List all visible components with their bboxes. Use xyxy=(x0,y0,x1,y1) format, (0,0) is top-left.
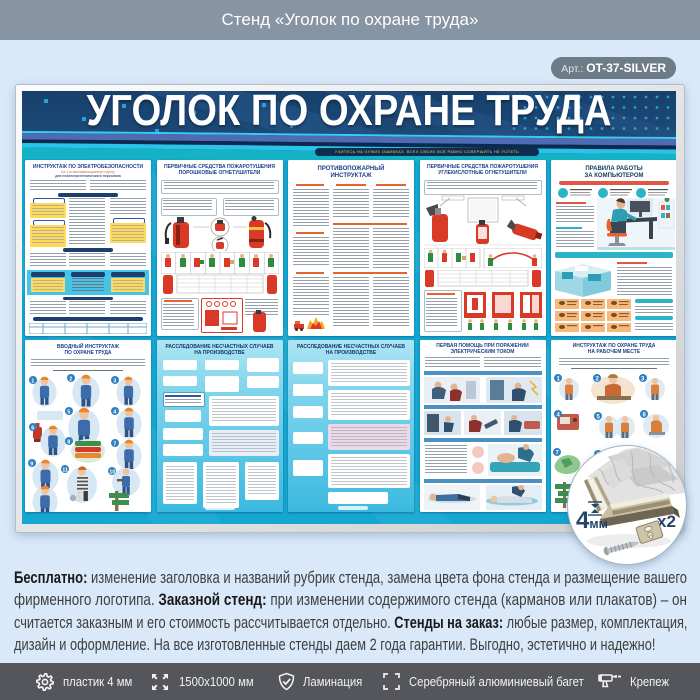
svg-text:10: 10 xyxy=(109,470,115,476)
svg-text:8: 8 xyxy=(67,440,70,446)
svg-text:6: 6 xyxy=(31,426,34,432)
svg-text:4мм: 4мм xyxy=(576,507,608,534)
svg-text:7: 7 xyxy=(113,442,116,448)
svg-text:1: 1 xyxy=(31,379,34,385)
svg-text:5: 5 xyxy=(67,410,70,416)
svg-text:11: 11 xyxy=(62,468,68,474)
svg-text:9: 9 xyxy=(30,462,33,468)
svg-text:3: 3 xyxy=(113,379,116,385)
svg-text:2: 2 xyxy=(69,377,72,383)
